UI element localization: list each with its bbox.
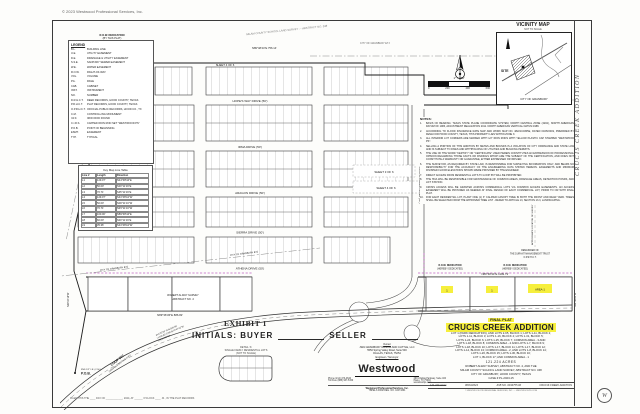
copyright-text: © 2023 Westwood Professional Services, I…	[62, 9, 143, 14]
sheet-label-2: SHEET 3 OF 6	[374, 170, 394, 174]
exhibit-label: EXHIBIT 1	[224, 319, 267, 328]
footer-date: 08/03/2024	[465, 384, 478, 387]
milam-survey-label: MILAM COUNTY SCHOOL LAND SURVEY — ABSTRA…	[246, 25, 327, 36]
detail-inset-graphic	[216, 355, 276, 385]
detail-inset: DETAIL 'A' SINGLE FAMILY RESIDENTIAL LOT…	[214, 346, 278, 390]
svg-text:(HEREBY DEDICATED): (HEREBY DEDICATED)	[437, 267, 463, 270]
title-block-footer: 121.224 Acres 08/03/2024 JOB NO. 0043755…	[428, 382, 574, 389]
title-block: FINAL PLAT CRUCIS CREEK ADDITION LOT 1 (…	[428, 318, 574, 392]
note-item: 1. BASIS OF BEARING: TEXAS STATE PLANE C…	[420, 122, 574, 128]
bearing-bottom-right: N89°48'44"E 1199.79'	[481, 272, 509, 276]
street-label-aragon: ARAGON DRIVE (50')	[235, 191, 265, 195]
note-item: 6. THE SURVEYOR, AS REQUIRED BY STATE LA…	[420, 163, 574, 172]
note-item: 5. THE USE OF THE WORD "CERTIFY" OR "CER…	[420, 152, 574, 161]
svg-text:(HEREBY DEDICATED): (HEREBY DEDICATED)	[502, 267, 528, 270]
note-item: 10. FOR EACH RESIDENTIAL LOT, PLANT ONE …	[420, 196, 574, 202]
legend-item: TYP. TYPICAL	[71, 136, 151, 141]
note-item: 4. SELLING A PORTION OF THIS ADDITION BY…	[420, 145, 574, 151]
footer-acres: 121.224 Acres	[430, 384, 447, 387]
initials-row: INITIALS: BUYER SELLER	[192, 331, 418, 340]
vicinity-map: VICINITY MAP NOT TO SCALE SITE CITY OF G…	[496, 22, 570, 110]
street-label-sierra: SIERRA DRIVE (50')	[236, 230, 264, 234]
initials-buyer-label: INITIALS: BUYER	[192, 331, 273, 340]
line-table: Key Map Line Table Line # Length Directi…	[78, 165, 153, 231]
notes-title: NOTES:	[420, 117, 574, 121]
street-label-irma: IRMA DRIVE (50')	[238, 145, 262, 149]
footer-job-number: JOB NO. 0043755.00	[496, 384, 521, 387]
vicinity-north-arrow-icon	[506, 38, 510, 49]
note-item: 2. ACCORDING TO FLOOD INSURANCE RATE MAP…	[420, 130, 574, 136]
vicinity-map-graphic: SITE CITY OF GRANBURY	[496, 32, 572, 105]
case-number: CASE # PL-2023-15	[428, 376, 574, 380]
westwood-logo: Westwood	[355, 363, 418, 377]
line-table-rows: L1 129.07' N44°48'44"E L2 50.00' S00°11'…	[81, 178, 151, 228]
street-label-hopes-way: HOPE'S WAY DRIVE (50')	[232, 99, 267, 103]
surveyor-seal-icon: W	[597, 388, 612, 403]
svg-text:REMAINDER OF: REMAINDER OF	[521, 249, 539, 252]
bearing-left-vertical: N00°24'18"W	[67, 292, 70, 307]
svg-text:APPROXIMATE LOCATION OF SURVEY: APPROXIMATE LOCATION OF SURVEY LINE	[531, 199, 534, 245]
svg-text:ROBERT ALWAY SURVEY: ROBERT ALWAY SURVEY	[167, 293, 199, 297]
bearing-bottom-left: N89°36'36"E 886.82'	[157, 313, 183, 317]
plat-description: LOT 1 (PARK DEDICATION), AND LOTS 2-65, …	[428, 332, 574, 359]
vicinity-site-label: SITE	[501, 69, 509, 73]
line-table-row: L9 35.36' S44°48'44"W	[81, 223, 151, 229]
footer-copyright: © WESTWOOD PROFESSIONAL SERVICES, INC. —…	[428, 390, 574, 392]
row-dedication-labels: R.O.W. DEDICATION (HEREBY DEDICATED) R.O…	[437, 264, 528, 270]
final-plat-label: FINAL PLAT	[488, 318, 514, 322]
note-item: 7. DIRECT ACCESS FROM RESIDENTIAL LOTS T…	[420, 174, 574, 177]
sheet-label-3: SHEET 4 OF 6	[376, 186, 396, 190]
svg-text:CITY OF GRANBURY ETJ: CITY OF GRANBURY ETJ	[100, 265, 129, 272]
seller-initials-field[interactable]	[372, 331, 418, 340]
westwood-tollfree: Toll Free (888) 937-5150	[328, 380, 353, 382]
note-item: 8. THE HOA WILL BE RESPONSIBLE FOR MAINT…	[420, 178, 574, 184]
svg-text:O.P.R.H.C.T.: O.P.R.H.C.T.	[524, 257, 537, 259]
plat-sheet: © 2023 Westwood Professional Services, I…	[0, 0, 640, 414]
notes-block: NOTES: 1. BASIS OF BEARING: TEXAS STATE …	[420, 117, 574, 204]
vicinity-subtitle: NOT TO SCALE	[496, 28, 570, 31]
pob-label: P.O.B.	[81, 372, 91, 376]
bearing-top: N89°48'44"E 756.14'	[252, 47, 277, 50]
initials-seller-label: SELLER	[329, 331, 367, 340]
vicinity-city-label: CITY OF GRANBURY	[520, 97, 548, 101]
legend-title: LEGEND	[71, 43, 151, 47]
legend-items: B.L. BUILDING LINE U.E. UTILITY EASEMENT…	[71, 48, 151, 141]
street-label-athena: ATHENA DRIVE (50')	[236, 266, 265, 270]
legend-box: LEGEND B.L. BUILDING LINE U.E. UTILITY E…	[68, 40, 154, 164]
etj-top-label: CITY OF GRANBURY ETJ	[360, 42, 390, 45]
scale-bar: 1" = 200' 0200400600	[428, 76, 490, 90]
plat-description-line: LOT 1, BLOCK 17; AND COMMON AREA - 1	[428, 356, 574, 359]
svg-text:ABSTRACT NO. 4: ABSTRACT NO. 4	[171, 297, 194, 301]
buyer-initials-field[interactable]	[278, 331, 324, 340]
note-item: 3. ALL INTERIOR LOT CORNERS ARE MARKED W…	[420, 137, 574, 143]
line-table-title: Key Map Line Table	[81, 168, 151, 172]
filing-line: FILED THIS THE ____ DAY OF ____________,…	[70, 397, 194, 400]
footer-plat-name: CRUCIS CREEK ADDITION	[539, 384, 572, 387]
highlighted-lot-3: AREA-1	[535, 287, 545, 291]
note-item: 9. CROSS ACCESS WILL BE GRANTED ACROSS C…	[420, 186, 574, 195]
scale-ratio-label: 1" = 200'	[428, 76, 490, 80]
notes-list: 1. BASIS OF BEARING: TEXAS STATE PLANE C…	[420, 122, 574, 202]
scale-tick-labels: 0200400600	[428, 87, 490, 90]
svg-text:THE DURANT MANAGEMENT TRUST: THE DURANT MANAGEMENT TRUST	[510, 253, 551, 256]
side-title-vertical: CRUCIS CREEK ADDITION	[575, 26, 591, 176]
